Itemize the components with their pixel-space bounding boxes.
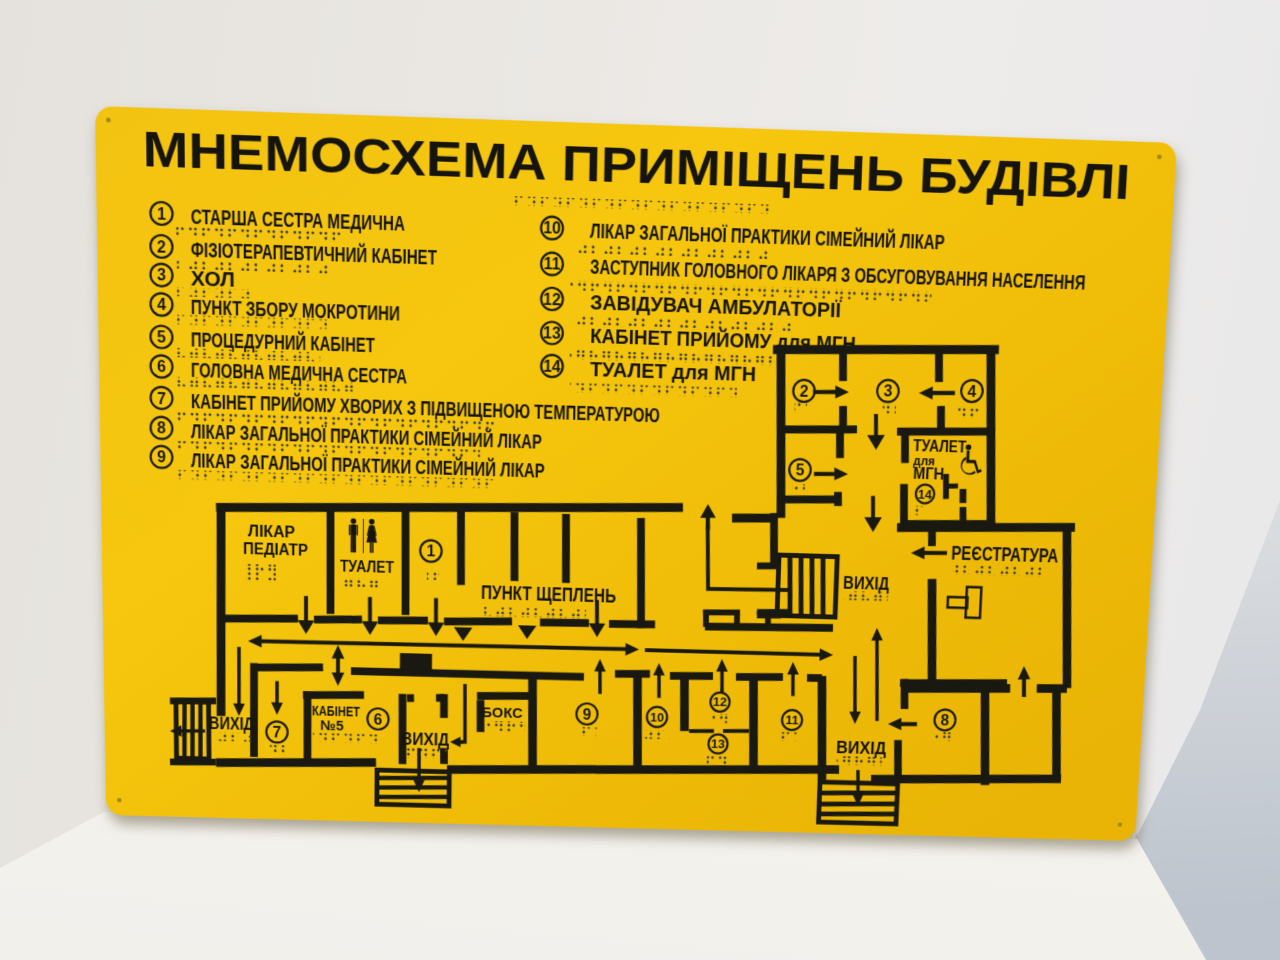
svg-text:9: 9	[157, 448, 166, 467]
svg-text:10: 10	[543, 219, 561, 238]
svg-text:6: 6	[374, 711, 383, 729]
svg-text:4: 4	[157, 295, 167, 314]
svg-text:8: 8	[157, 419, 166, 438]
svg-text:ВИХІД: ВИХІД	[836, 738, 887, 759]
svg-text:4: 4	[967, 382, 977, 401]
svg-text:11: 11	[785, 713, 799, 727]
svg-text:МГН: МГН	[913, 463, 945, 483]
svg-text:ПЕДІАТР: ПЕДІАТР	[243, 539, 308, 560]
svg-text:РЕЄСТРАТУРА: РЕЄСТРАТУРА	[951, 543, 1059, 568]
svg-text:ВИХІД: ВИХІД	[209, 715, 254, 736]
svg-text:14: 14	[918, 487, 933, 502]
svg-text:2: 2	[157, 237, 166, 256]
svg-text:7: 7	[157, 389, 166, 408]
svg-text:3: 3	[883, 382, 892, 401]
svg-text:6: 6	[157, 358, 166, 377]
svg-text:ТУАЛЕТ: ТУАЛЕТ	[340, 556, 394, 576]
svg-text:1: 1	[427, 542, 436, 560]
svg-text:5: 5	[795, 461, 804, 479]
svg-text:11: 11	[543, 255, 560, 274]
svg-text:1: 1	[157, 204, 166, 223]
svg-text:9: 9	[583, 706, 592, 724]
svg-text:ВИХІД: ВИХІД	[401, 730, 449, 751]
svg-text:№5: №5	[320, 718, 343, 734]
svg-text:13: 13	[543, 324, 561, 343]
svg-text:10: 10	[650, 710, 664, 724]
svg-text:8: 8	[940, 712, 949, 730]
svg-text:14: 14	[543, 357, 562, 376]
svg-text:2: 2	[799, 382, 808, 401]
svg-text:13: 13	[711, 737, 726, 751]
svg-text:5: 5	[157, 328, 166, 347]
svg-text:12: 12	[713, 695, 727, 709]
svg-text:3: 3	[157, 266, 166, 285]
svg-text:12: 12	[543, 290, 561, 309]
svg-text:БОКС: БОКС	[481, 705, 522, 722]
svg-text:7: 7	[273, 724, 282, 742]
